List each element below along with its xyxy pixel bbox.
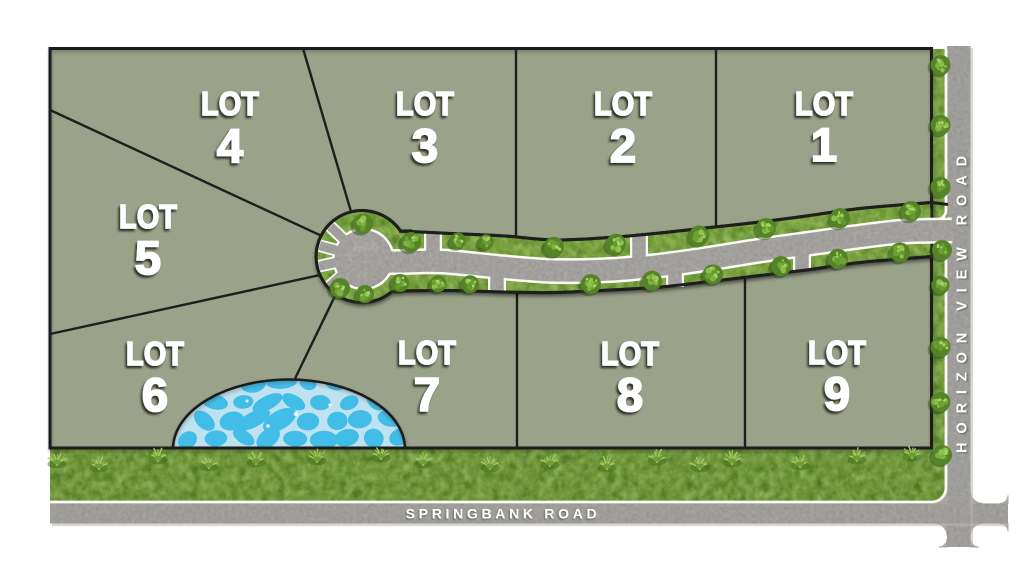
svg-text:LOT: LOT xyxy=(808,335,866,372)
svg-text:LOT: LOT xyxy=(126,336,184,373)
svg-text:3: 3 xyxy=(412,120,438,173)
svg-text:HORIZON VIEW ROAD: HORIZON VIEW ROAD xyxy=(955,147,971,453)
svg-text:7: 7 xyxy=(414,369,440,422)
svg-text:8: 8 xyxy=(617,369,643,422)
svg-text:SPRINGBANK ROAD: SPRINGBANK ROAD xyxy=(406,506,601,522)
svg-text:9: 9 xyxy=(824,368,850,421)
svg-text:LOT: LOT xyxy=(119,199,177,236)
svg-text:LOT: LOT xyxy=(601,336,659,373)
svg-text:LOT: LOT xyxy=(398,335,456,372)
svg-text:1: 1 xyxy=(811,119,837,172)
svg-text:2: 2 xyxy=(610,120,636,173)
svg-text:5: 5 xyxy=(135,232,161,285)
svg-text:LOT: LOT xyxy=(396,86,454,123)
svg-text:LOT: LOT xyxy=(201,86,259,123)
svg-text:4: 4 xyxy=(217,120,244,173)
svg-text:LOT: LOT xyxy=(795,86,853,123)
svg-text:LOT: LOT xyxy=(594,86,652,123)
svg-text:6: 6 xyxy=(142,369,168,422)
